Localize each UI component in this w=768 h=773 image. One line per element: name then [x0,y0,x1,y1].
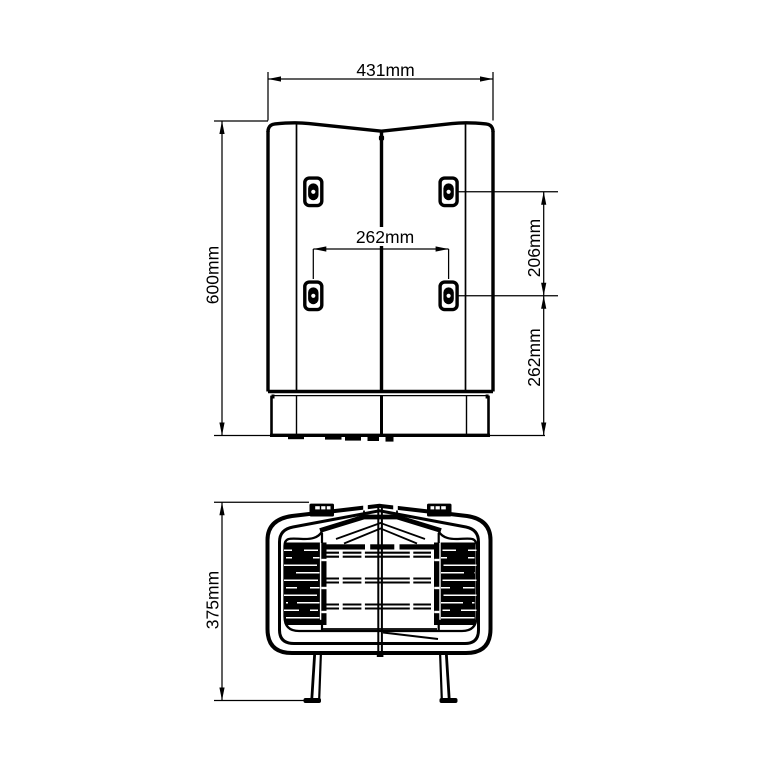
svg-text:262mm: 262mm [356,227,414,247]
svg-text:431mm: 431mm [356,60,414,80]
svg-text:375mm: 375mm [203,571,223,629]
svg-text:206mm: 206mm [524,219,544,277]
svg-text:262mm: 262mm [524,328,544,386]
svg-text:600mm: 600mm [203,246,223,304]
